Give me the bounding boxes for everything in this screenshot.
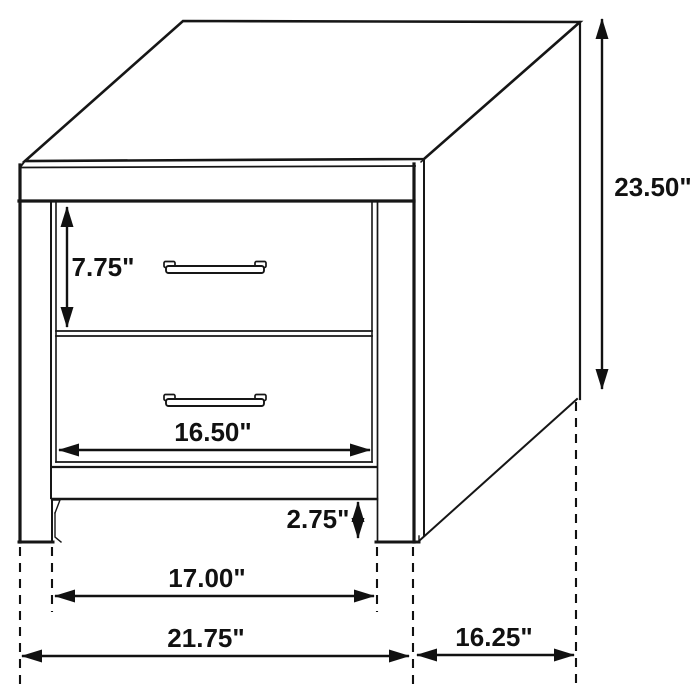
dimension-base-clearance: 2.75" [287, 502, 358, 538]
top-drawer-handle [164, 262, 266, 274]
overall-width-label: 21.75" [167, 623, 244, 653]
side-panel-bottom-edge [419, 399, 577, 541]
overall-depth-label: 16.25" [455, 622, 532, 652]
dimension-diagram-canvas: 23.50" 7.75" 16.50" 2.75" 17.00" 21.75" … [0, 0, 700, 700]
dimension-overall-width: 21.75" [22, 623, 409, 656]
tabletop [20, 21, 580, 168]
handle-bar [166, 266, 264, 273]
drawer-opening-width-label: 16.50" [174, 417, 251, 447]
dimension-drawer-opening-width: 16.50" [59, 417, 370, 450]
base-clearance-label: 2.75" [287, 504, 350, 534]
tabletop-surface [25, 21, 580, 161]
handle-bar [166, 399, 264, 406]
bottom-drawer-handle [164, 395, 266, 407]
inner-leg-span-label: 17.00" [168, 563, 245, 593]
cabinet-frame [19, 164, 414, 542]
dimension-overall-depth: 16.25" [417, 622, 574, 655]
base-rail [52, 467, 377, 499]
left-leg-side-shade [55, 513, 61, 542]
tabletop-front-edge-bottom [20, 166, 415, 168]
drawer-front-height-label: 7.75" [72, 252, 135, 282]
dimension-inner-leg-span: 17.00" [55, 563, 374, 596]
left-leg-chamfer [52, 500, 60, 513]
overall-height-label: 23.50" [614, 172, 691, 202]
dimension-overall-height: 23.50" [602, 19, 692, 389]
nightstand-line-drawing: 23.50" 7.75" 16.50" 2.75" 17.00" 21.75" … [0, 0, 700, 700]
dimension-drawer-front-height: 7.75" [67, 207, 134, 327]
